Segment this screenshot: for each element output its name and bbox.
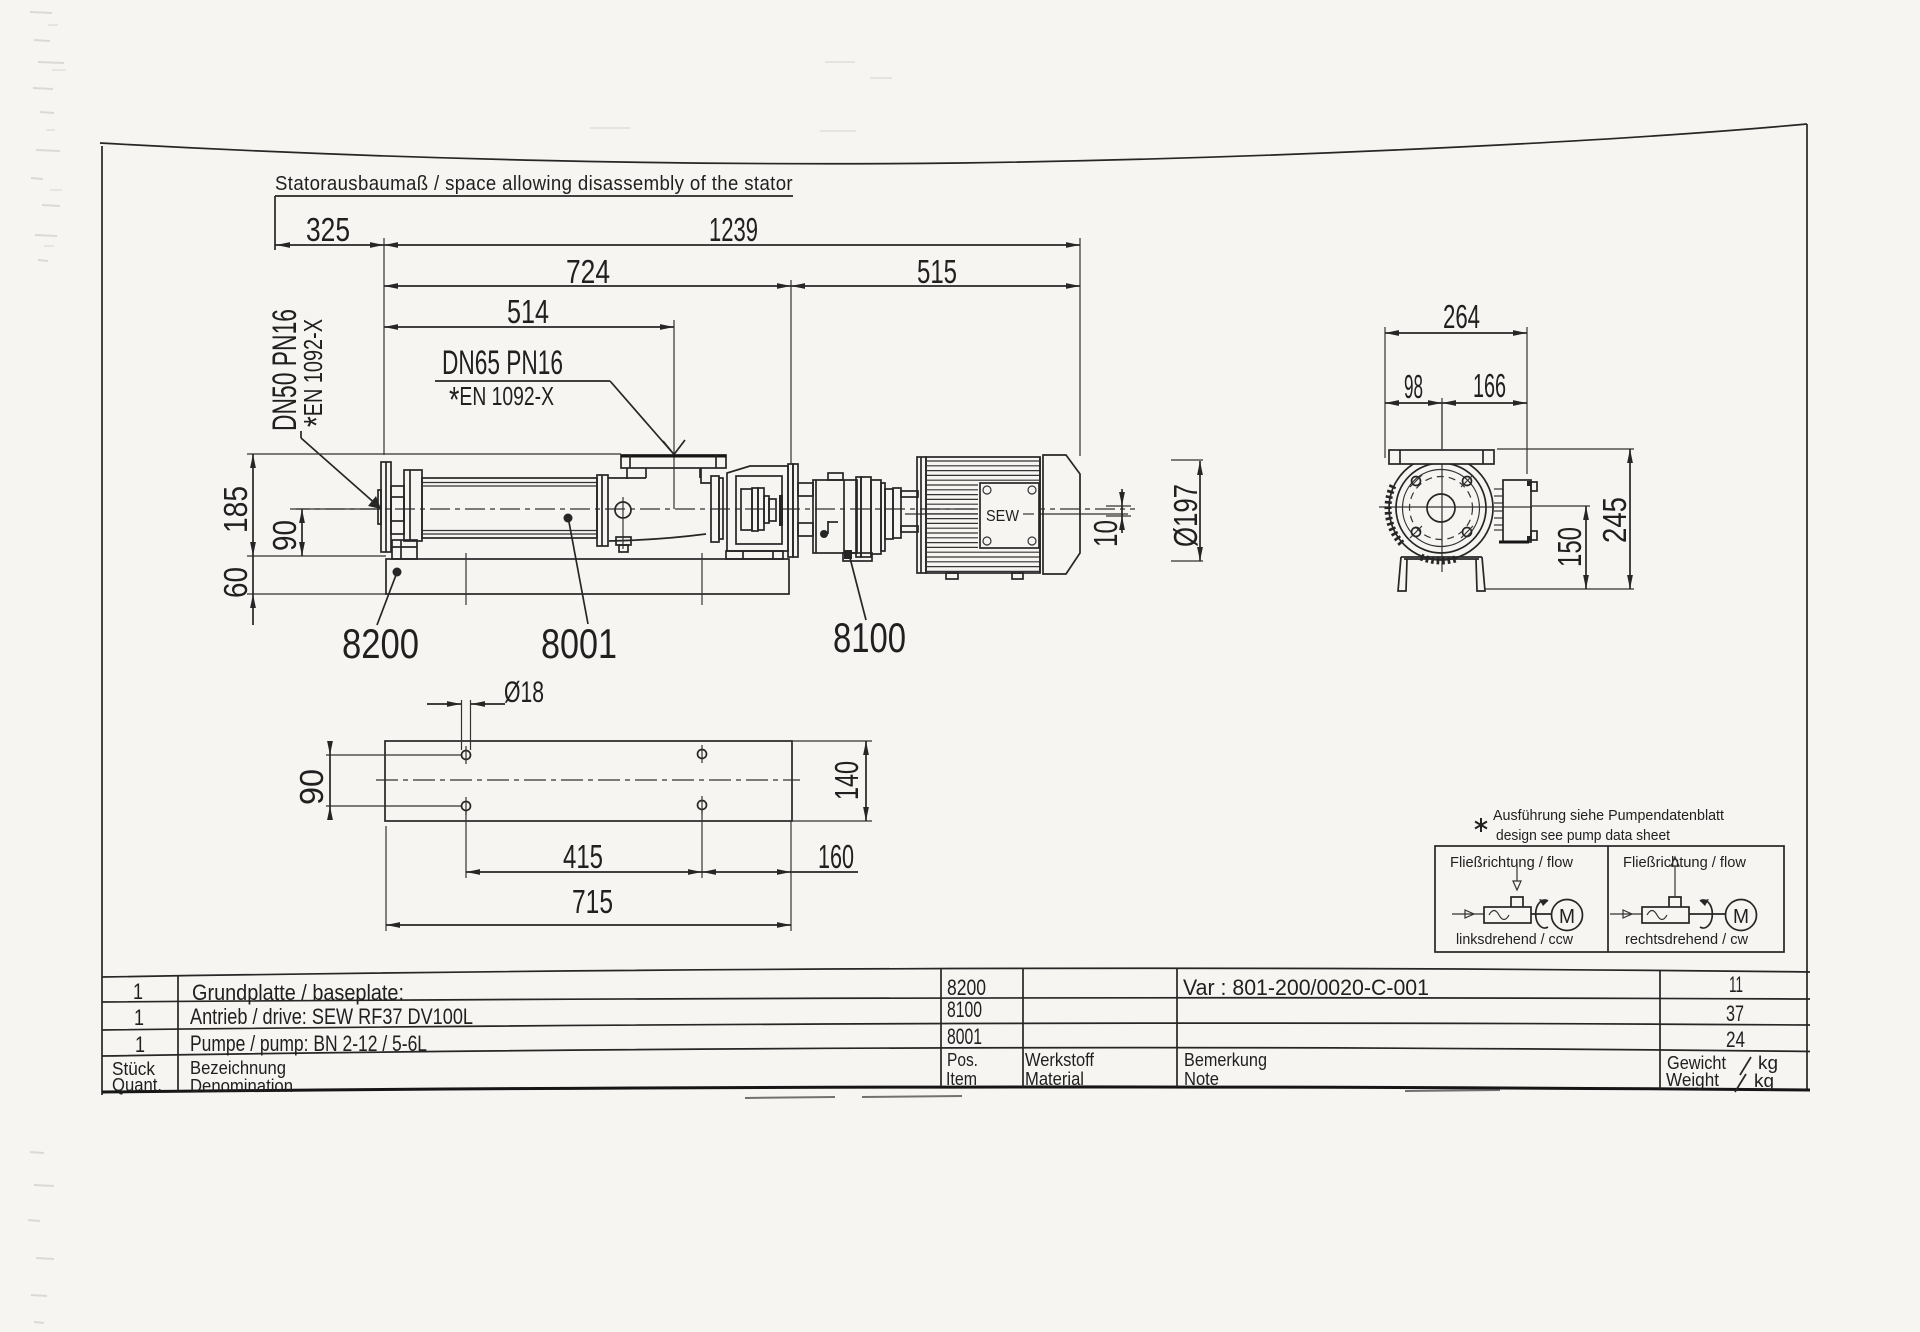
svg-text:Werkstoff: Werkstoff	[1025, 1050, 1095, 1070]
svg-text:Material: Material	[1025, 1069, 1084, 1089]
svg-text:rechtsdrehend / cw: rechtsdrehend / cw	[1625, 931, 1748, 948]
svg-text:Ø197: Ø197	[1167, 484, 1204, 547]
svg-text:140: 140	[828, 761, 865, 800]
svg-text:264: 264	[1443, 298, 1480, 335]
svg-text:Pumpe / pump: BN 2-12 / 5-6L: Pumpe / pump: BN 2-12 / 5-6L	[190, 1031, 427, 1056]
svg-text:90: 90	[266, 520, 303, 551]
svg-text:Denomination: Denomination	[190, 1076, 293, 1096]
svg-text:245: 245	[1596, 497, 1633, 543]
svg-text:Fließrichtung / flow: Fließrichtung / flow	[1623, 854, 1746, 871]
svg-text:Pos.: Pos.	[947, 1050, 978, 1070]
svg-text:Statorausbaumaß / space allowi: Statorausbaumaß / space allowing disasse…	[275, 173, 793, 195]
svg-text:linksdrehend / ccw: linksdrehend / ccw	[1456, 931, 1573, 948]
svg-text:Fließrichtung / flow: Fließrichtung / flow	[1450, 854, 1573, 871]
svg-text:10: 10	[1087, 520, 1124, 547]
svg-text:kg: kg	[1758, 1053, 1778, 1073]
svg-text:166: 166	[1473, 367, 1506, 404]
svg-text:1: 1	[134, 1005, 144, 1030]
svg-text:150: 150	[1551, 527, 1588, 567]
svg-text:Bezeichnung: Bezeichnung	[190, 1058, 286, 1078]
svg-text:SEW: SEW	[986, 508, 1020, 525]
svg-text:8100: 8100	[947, 997, 982, 1022]
svg-text:325: 325	[306, 211, 350, 248]
svg-text:715: 715	[572, 883, 613, 920]
svg-text:Quant.: Quant.	[112, 1075, 162, 1095]
svg-text:185: 185	[217, 486, 254, 533]
svg-text:98: 98	[1404, 368, 1423, 405]
svg-text:Bemerkung: Bemerkung	[1184, 1050, 1267, 1070]
svg-text:514: 514	[507, 293, 549, 330]
svg-text:415: 415	[563, 838, 603, 875]
svg-text:Grundplatte / baseplate:: Grundplatte / baseplate:	[192, 980, 404, 1005]
svg-text:DN65 PN16: DN65 PN16	[442, 344, 563, 382]
svg-text:8001: 8001	[541, 620, 617, 667]
svg-text:515: 515	[917, 253, 957, 290]
svg-text:Weight: Weight	[1666, 1070, 1719, 1090]
svg-text:1: 1	[135, 1032, 145, 1057]
svg-text:Var : 801-200/0020-C-001: Var : 801-200/0020-C-001	[1183, 975, 1429, 1000]
svg-text:24: 24	[1726, 1027, 1745, 1052]
svg-text:11: 11	[1729, 972, 1743, 997]
svg-text:60: 60	[217, 567, 254, 598]
svg-text:160: 160	[818, 838, 854, 875]
svg-text:M: M	[1559, 906, 1575, 928]
svg-text:37: 37	[1726, 1001, 1744, 1026]
svg-text:90: 90	[293, 769, 330, 805]
svg-text:8100: 8100	[833, 614, 906, 661]
svg-text:Ø18: Ø18	[504, 676, 544, 709]
svg-text:design see pump data sheet: design see pump data sheet	[1496, 827, 1671, 844]
svg-text:M: M	[1733, 906, 1749, 928]
svg-text:8001: 8001	[947, 1024, 982, 1049]
svg-text:Note: Note	[1184, 1069, 1219, 1089]
svg-text:1: 1	[133, 979, 143, 1004]
svg-text:724: 724	[566, 253, 610, 290]
svg-text:kg: kg	[1754, 1071, 1774, 1091]
svg-text:Item: Item	[946, 1069, 977, 1089]
svg-text:Ausführung siehe Pumpendatenbl: Ausführung siehe Pumpendatenblatt	[1493, 807, 1725, 824]
svg-text:1239: 1239	[709, 211, 758, 248]
svg-text:8200: 8200	[342, 620, 419, 667]
svg-text:Antrieb / drive: SEW RF37 DV10: Antrieb / drive: SEW RF37 DV100L	[190, 1004, 473, 1029]
